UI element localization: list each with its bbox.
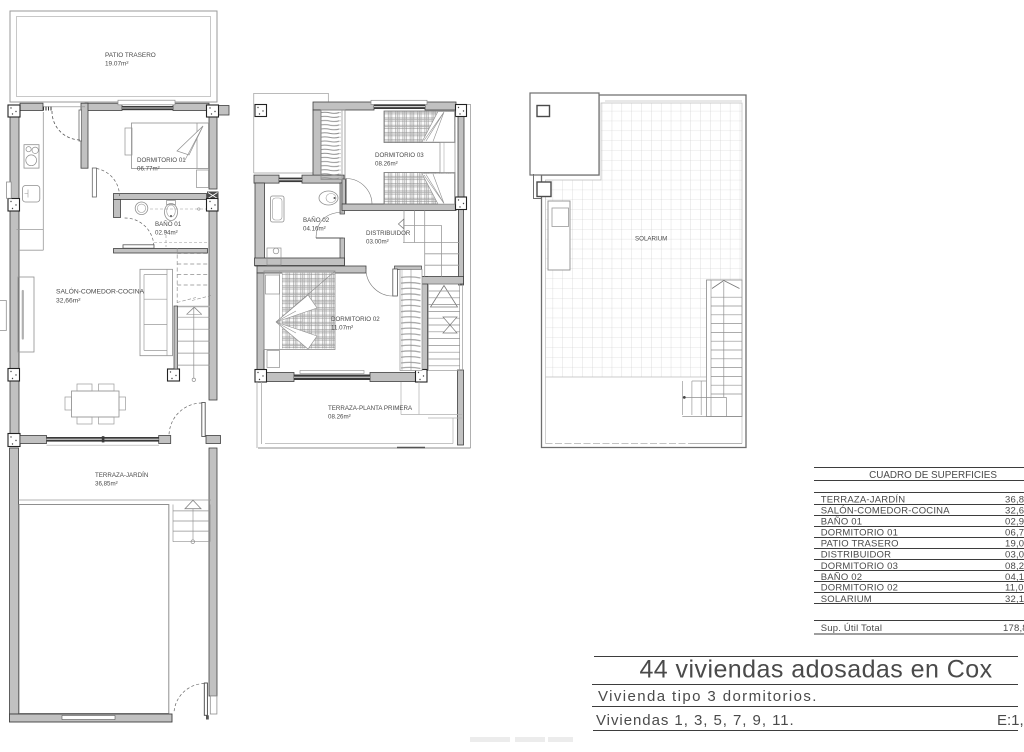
svg-text:E:1,: E:1, <box>997 712 1024 729</box>
svg-text:DORMITORIO 03: DORMITORIO 03 <box>375 152 424 159</box>
svg-text:08.26m²: 08.26m² <box>328 414 351 421</box>
svg-text:SOLARIUM: SOLARIUM <box>821 594 872 605</box>
svg-text:19,07: 19,07 <box>1005 539 1024 550</box>
svg-text:PATIO TRASERO: PATIO TRASERO <box>821 539 899 550</box>
svg-text:DORMITORIO 03: DORMITORIO 03 <box>821 561 898 572</box>
svg-text:32,66: 32,66 <box>1005 506 1024 517</box>
svg-text:DISTRIBUIDOR: DISTRIBUIDOR <box>821 550 892 561</box>
svg-text:BAÑO 01: BAÑO 01 <box>821 517 863 528</box>
svg-text:DORMITORIO 01: DORMITORIO 01 <box>821 528 898 539</box>
svg-text:Sup. Útil Total: Sup. Útil Total <box>821 623 882 634</box>
svg-text:BAÑO 01: BAÑO 01 <box>155 221 182 228</box>
svg-text:03.00m²: 03.00m² <box>366 239 389 246</box>
svg-text:02,94: 02,94 <box>1005 517 1024 528</box>
svg-text:32,66m²: 32,66m² <box>56 298 81 305</box>
svg-text:DORMITORIO 02: DORMITORIO 02 <box>821 583 898 594</box>
svg-text:08.26m²: 08.26m² <box>375 161 398 168</box>
svg-text:11,07: 11,07 <box>1005 583 1024 594</box>
svg-text:06,77: 06,77 <box>1005 528 1024 539</box>
svg-text:BAÑO 02: BAÑO 02 <box>821 572 863 583</box>
svg-text:06.77m²: 06.77m² <box>137 166 160 173</box>
svg-text:TERRAZA-JARDÍN: TERRAZA-JARDÍN <box>95 472 148 479</box>
svg-text:08,26: 08,26 <box>1005 561 1024 572</box>
svg-text:44 viviendas adosadas en Cox: 44 viviendas adosadas en Cox <box>639 656 992 684</box>
svg-text:04.16m²: 04.16m² <box>303 226 326 233</box>
svg-text:SALÓN-COMEDOR-COCINA: SALÓN-COMEDOR-COCINA <box>821 506 951 517</box>
svg-text:CUADRO DE SUPERFICIES: CUADRO DE SUPERFICIES <box>869 470 997 481</box>
svg-text:03,00: 03,00 <box>1005 550 1024 561</box>
svg-text:Vivienda tipo 3 dormitorios.: Vivienda tipo 3 dormitorios. <box>598 688 818 705</box>
svg-text:178,85: 178,85 <box>1003 623 1024 634</box>
svg-text:DORMITORIO 02: DORMITORIO 02 <box>331 316 380 323</box>
svg-text:02.94m²: 02.94m² <box>155 230 178 237</box>
svg-text:11.07m²: 11.07m² <box>331 325 353 332</box>
svg-text:36,85: 36,85 <box>1005 495 1024 506</box>
svg-text:19.07m²: 19.07m² <box>105 61 128 68</box>
svg-text:Viviendas 1, 3, 5, 7, 9, 11.: Viviendas 1, 3, 5, 7, 9, 11. <box>596 712 795 729</box>
svg-text:BAÑO 02: BAÑO 02 <box>303 217 330 224</box>
svg-text:32,12: 32,12 <box>1005 594 1024 605</box>
svg-text:DORMITORIO 01: DORMITORIO 01 <box>137 157 186 164</box>
svg-text:SALÓN-COMEDOR-COCINA: SALÓN-COMEDOR-COCINA <box>56 287 145 296</box>
svg-text:04,16: 04,16 <box>1005 572 1024 583</box>
svg-text:TERRAZA-JARDÍN: TERRAZA-JARDÍN <box>821 495 906 506</box>
svg-text:TERRAZA-PLANTA PRIMERA: TERRAZA-PLANTA PRIMERA <box>328 405 413 412</box>
svg-text:PATIO TRASERO: PATIO TRASERO <box>105 52 156 59</box>
svg-text:36,85m²: 36,85m² <box>95 481 118 488</box>
svg-text:SOLARIUM: SOLARIUM <box>635 236 667 243</box>
